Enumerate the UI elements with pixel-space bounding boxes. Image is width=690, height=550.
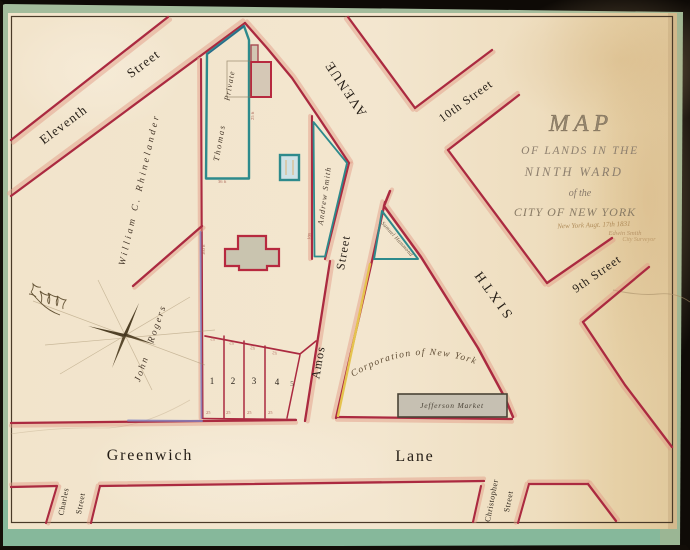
svg-text:5: 5 <box>290 380 294 388</box>
svg-text:25: 25 <box>226 410 231 415</box>
svg-text:Edwin Smith: Edwin Smith <box>607 230 641 237</box>
svg-text:4: 4 <box>275 377 280 387</box>
svg-text:CITY OF NEW YORK: CITY OF NEW YORK <box>514 205 636 219</box>
svg-text:25: 25 <box>247 410 252 415</box>
svg-text:MAP: MAP <box>548 111 613 137</box>
svg-text:25: 25 <box>268 410 273 415</box>
svg-text:Jefferson Market: Jefferson Market <box>420 401 484 410</box>
svg-text:of the: of the <box>569 188 592 199</box>
svg-text:25: 25 <box>206 410 211 415</box>
svg-text:1: 1 <box>210 376 215 386</box>
svg-text:2: 2 <box>231 376 236 386</box>
svg-text:360 ft: 360 ft <box>201 244 206 255</box>
svg-text:Greenwich: Greenwich <box>107 447 193 464</box>
svg-text:25 ft: 25 ft <box>250 111 255 120</box>
svg-text:OF LANDS IN THE: OF LANDS IN THE <box>521 145 639 157</box>
svg-text:City Surveyor: City Surveyor <box>622 237 656 243</box>
svg-text:NINTH WARD: NINTH WARD <box>524 165 624 179</box>
svg-text:36 ft: 36 ft <box>218 179 227 184</box>
svg-text:Lane: Lane <box>395 448 434 465</box>
svg-text:3: 3 <box>252 376 257 386</box>
